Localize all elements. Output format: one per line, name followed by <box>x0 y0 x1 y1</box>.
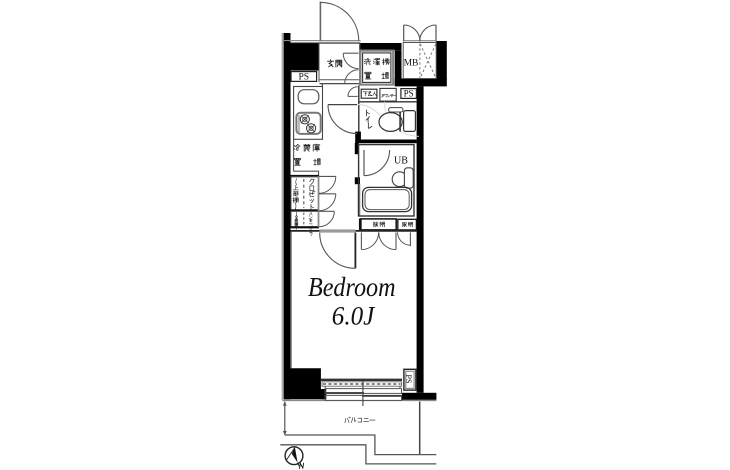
svg-text:MB: MB <box>404 59 419 69</box>
svg-text:6.0J: 6.0J <box>332 302 376 331</box>
svg-text:UB: UB <box>394 156 408 167</box>
svg-text:PS: PS <box>404 89 414 99</box>
svg-text:Bedroom: Bedroom <box>308 272 396 302</box>
svg-text:PS: PS <box>404 375 413 384</box>
svg-text:PS: PS <box>299 73 310 83</box>
